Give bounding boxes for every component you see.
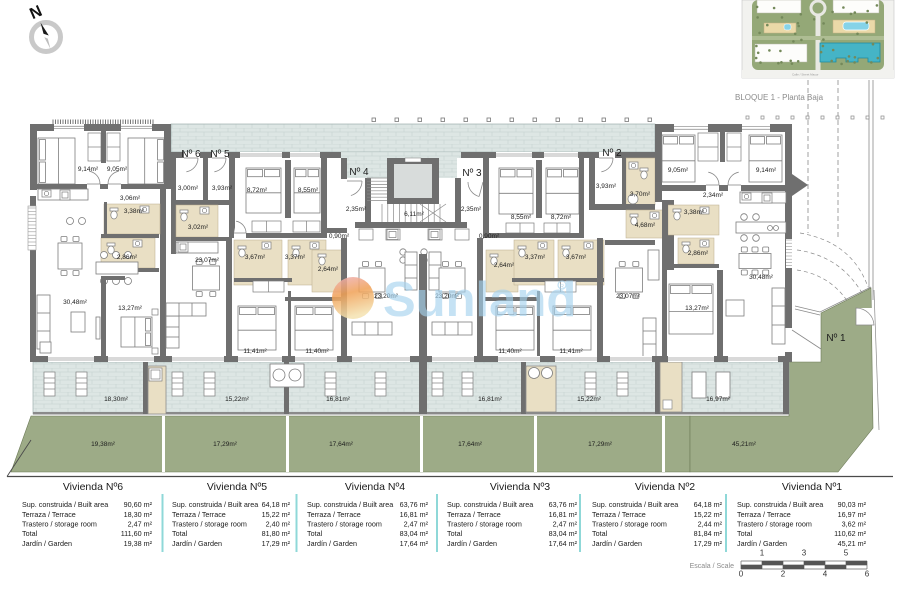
svg-text:64,18 m²: 64,18 m² (694, 500, 723, 509)
svg-text:45,21m²: 45,21m² (732, 441, 757, 448)
svg-text:Vivienda Nº4: Vivienda Nº4 (345, 481, 405, 493)
svg-text:16,81m²: 16,81m² (326, 396, 351, 403)
svg-text:2,35m²: 2,35m² (346, 206, 367, 213)
svg-text:Sup. construida / Built area: Sup. construida / Built area (172, 500, 258, 509)
svg-text:Sup. construida / Built area: Sup. construida / Built area (22, 500, 108, 509)
svg-text:Terraza / Terrace: Terraza / Terrace (172, 510, 226, 519)
svg-text:17,64m²: 17,64m² (329, 441, 354, 448)
svg-text:81,80 m²: 81,80 m² (262, 529, 291, 538)
svg-text:19,38m²: 19,38m² (91, 441, 116, 448)
svg-text:Calle / Street Mayor: Calle / Street Mayor (792, 73, 819, 77)
svg-text:8,72m²: 8,72m² (551, 214, 572, 221)
svg-text:90,60 m²: 90,60 m² (124, 500, 153, 509)
svg-text:4: 4 (823, 570, 828, 579)
svg-text:2,34m²: 2,34m² (703, 192, 724, 199)
svg-text:3,93m²: 3,93m² (212, 185, 233, 192)
svg-text:Trastero / storage room: Trastero / storage room (592, 520, 667, 529)
svg-text:11,40m²: 11,40m² (498, 348, 522, 355)
svg-text:11,41m²: 11,41m² (243, 348, 267, 355)
svg-text:30,48m²: 30,48m² (63, 299, 88, 306)
svg-text:Jardín / Garden: Jardín / Garden (592, 539, 642, 548)
svg-text:2,86m²: 2,86m² (117, 254, 138, 261)
svg-text:9,14m²: 9,14m² (78, 166, 99, 173)
svg-text:15,22m²: 15,22m² (577, 396, 602, 403)
svg-text:3,67m²: 3,67m² (566, 254, 587, 261)
svg-text:3: 3 (802, 549, 807, 558)
svg-text:11,41m²: 11,41m² (559, 348, 583, 355)
svg-text:15,22 m²: 15,22 m² (694, 510, 723, 519)
svg-text:0,90m²: 0,90m² (329, 233, 350, 240)
svg-text:2,64m²: 2,64m² (494, 262, 515, 269)
svg-text:Nº 5: Nº 5 (210, 149, 230, 160)
svg-text:Total: Total (447, 529, 463, 538)
svg-text:17,64 m²: 17,64 m² (549, 539, 578, 548)
svg-text:Nº 3: Nº 3 (462, 168, 482, 179)
svg-text:Nº 2: Nº 2 (602, 148, 622, 159)
svg-text:17,29 m²: 17,29 m² (262, 539, 291, 548)
svg-text:8,55m²: 8,55m² (298, 187, 319, 194)
svg-text:Total: Total (172, 529, 188, 538)
svg-text:Terraza / Terrace: Terraza / Terrace (737, 510, 791, 519)
svg-text:3,06m²: 3,06m² (120, 195, 141, 202)
svg-text:Jardín / Garden: Jardín / Garden (447, 539, 497, 548)
svg-text:Trastero / storage room: Trastero / storage room (22, 520, 97, 529)
svg-text:Total: Total (737, 529, 753, 538)
svg-text:Total: Total (22, 529, 38, 538)
svg-text:Nº 6: Nº 6 (181, 149, 201, 160)
svg-text:16,97m²: 16,97m² (706, 396, 731, 403)
svg-text:4,68m²: 4,68m² (635, 222, 656, 229)
svg-text:110,62 m²: 110,62 m² (834, 529, 866, 538)
svg-text:13,27m²: 13,27m² (118, 305, 143, 312)
svg-text:17,64 m²: 17,64 m² (400, 539, 429, 548)
svg-text:Terraza / Terrace: Terraza / Terrace (447, 510, 501, 519)
svg-text:R: R (560, 284, 564, 290)
svg-text:Vivienda Nº5: Vivienda Nº5 (207, 481, 267, 493)
svg-text:8,72m²: 8,72m² (247, 187, 268, 194)
svg-text:Vivienda Nº3: Vivienda Nº3 (490, 481, 550, 493)
svg-text:3,02m²: 3,02m² (188, 224, 209, 231)
svg-text:Trastero / storage room: Trastero / storage room (737, 520, 812, 529)
svg-text:Vivienda Nº2: Vivienda Nº2 (635, 481, 695, 493)
svg-text:2: 2 (781, 570, 786, 579)
svg-text:Jardín / Garden: Jardín / Garden (22, 539, 72, 548)
svg-text:19,38 m²: 19,38 m² (124, 539, 153, 548)
svg-text:17,64m²: 17,64m² (458, 441, 483, 448)
svg-text:63,76 m²: 63,76 m² (400, 500, 429, 509)
svg-text:30,48m²: 30,48m² (749, 274, 774, 281)
svg-text:3,37m²: 3,37m² (525, 254, 546, 261)
svg-text:3,67m²: 3,67m² (245, 254, 266, 261)
svg-text:3,00m²: 3,00m² (178, 185, 199, 192)
svg-text:18,30 m²: 18,30 m² (124, 510, 153, 519)
svg-text:Sup. construida / Built area: Sup. construida / Built area (737, 500, 823, 509)
svg-text:Sunland: Sunland (383, 273, 576, 327)
svg-text:Jardín / Garden: Jardín / Garden (307, 539, 357, 548)
svg-text:45,21 m²: 45,21 m² (838, 539, 867, 548)
svg-text:Total: Total (592, 529, 608, 538)
svg-text:3,37m²: 3,37m² (285, 254, 306, 261)
svg-text:2,47 m²: 2,47 m² (553, 520, 578, 529)
svg-text:9,05m²: 9,05m² (107, 166, 128, 173)
svg-text:2,47 m²: 2,47 m² (128, 520, 153, 529)
svg-text:16,81 m²: 16,81 m² (400, 510, 429, 519)
svg-text:18,30m²: 18,30m² (104, 396, 129, 403)
svg-text:Trastero / storage room: Trastero / storage room (447, 520, 522, 529)
svg-text:Sup. construida / Built area: Sup. construida / Built area (592, 500, 678, 509)
svg-text:16,81 m²: 16,81 m² (549, 510, 578, 519)
svg-text:3,38m²: 3,38m² (124, 208, 145, 215)
svg-text:23,07m²: 23,07m² (616, 293, 641, 300)
svg-text:9,14m²: 9,14m² (756, 167, 777, 174)
svg-text:81,84 m²: 81,84 m² (694, 529, 723, 538)
svg-text:Sup. construida / Built area: Sup. construida / Built area (307, 500, 393, 509)
svg-text:Terraza / Terrace: Terraza / Terrace (307, 510, 361, 519)
svg-text:BLOQUE 1 - Planta Baja: BLOQUE 1 - Planta Baja (735, 93, 824, 102)
svg-text:16,81m²: 16,81m² (478, 396, 503, 403)
svg-text:83,04 m²: 83,04 m² (549, 529, 578, 538)
svg-text:17,29m²: 17,29m² (213, 441, 238, 448)
svg-text:23,07m²: 23,07m² (195, 257, 220, 264)
svg-text:Jardín / Garden: Jardín / Garden (737, 539, 787, 548)
svg-text:3,62 m²: 3,62 m² (842, 520, 867, 529)
svg-text:0: 0 (739, 570, 744, 579)
svg-text:63,76 m²: 63,76 m² (549, 500, 578, 509)
svg-text:13,27m²: 13,27m² (685, 305, 710, 312)
svg-text:Escala / Scale: Escala / Scale (690, 563, 734, 570)
svg-text:9,05m²: 9,05m² (668, 167, 689, 174)
svg-text:Total: Total (307, 529, 323, 538)
svg-text:3,93m²: 3,93m² (596, 183, 617, 190)
svg-text:Terraza / Terrace: Terraza / Terrace (22, 510, 76, 519)
svg-text:16,97 m²: 16,97 m² (838, 510, 867, 519)
svg-text:2,40 m²: 2,40 m² (266, 520, 291, 529)
svg-text:17,29 m²: 17,29 m² (694, 539, 723, 548)
svg-text:17,29m²: 17,29m² (588, 441, 613, 448)
svg-text:2,64m²: 2,64m² (318, 266, 339, 273)
svg-text:15,22m²: 15,22m² (225, 396, 250, 403)
svg-text:8,55m²: 8,55m² (511, 214, 532, 221)
svg-text:1: 1 (760, 549, 765, 558)
svg-text:2,44 m²: 2,44 m² (698, 520, 723, 529)
svg-text:Nº 1: Nº 1 (826, 333, 846, 344)
svg-text:Sup. construida / Built area: Sup. construida / Built area (447, 500, 533, 509)
svg-text:111,60 m²: 111,60 m² (121, 529, 153, 538)
svg-text:15,22 m²: 15,22 m² (262, 510, 291, 519)
svg-text:5: 5 (844, 549, 849, 558)
svg-text:83,04 m²: 83,04 m² (400, 529, 429, 538)
svg-text:6: 6 (865, 570, 870, 579)
svg-text:90,03 m²: 90,03 m² (838, 500, 867, 509)
svg-text:Trastero / storage room: Trastero / storage room (172, 520, 247, 529)
svg-text:Nº 4: Nº 4 (349, 167, 369, 178)
svg-text:2,47 m²: 2,47 m² (404, 520, 429, 529)
svg-text:2,86m²: 2,86m² (688, 250, 709, 257)
svg-text:Jardín / Garden: Jardín / Garden (172, 539, 222, 548)
svg-text:Vivienda Nº6: Vivienda Nº6 (63, 481, 123, 493)
svg-text:Vivienda Nº1: Vivienda Nº1 (782, 481, 842, 493)
svg-text:Terraza / Terrace: Terraza / Terrace (592, 510, 646, 519)
svg-text:3,38m²: 3,38m² (684, 209, 705, 216)
svg-text:2,35m²: 2,35m² (461, 206, 482, 213)
svg-text:64,18 m²: 64,18 m² (262, 500, 291, 509)
svg-text:11,40m²: 11,40m² (305, 348, 329, 355)
svg-text:Trastero / storage room: Trastero / storage room (307, 520, 382, 529)
svg-text:0,90m²: 0,90m² (479, 233, 500, 240)
svg-text:6,11m²: 6,11m² (404, 211, 425, 218)
svg-text:3,70m²: 3,70m² (630, 191, 651, 198)
